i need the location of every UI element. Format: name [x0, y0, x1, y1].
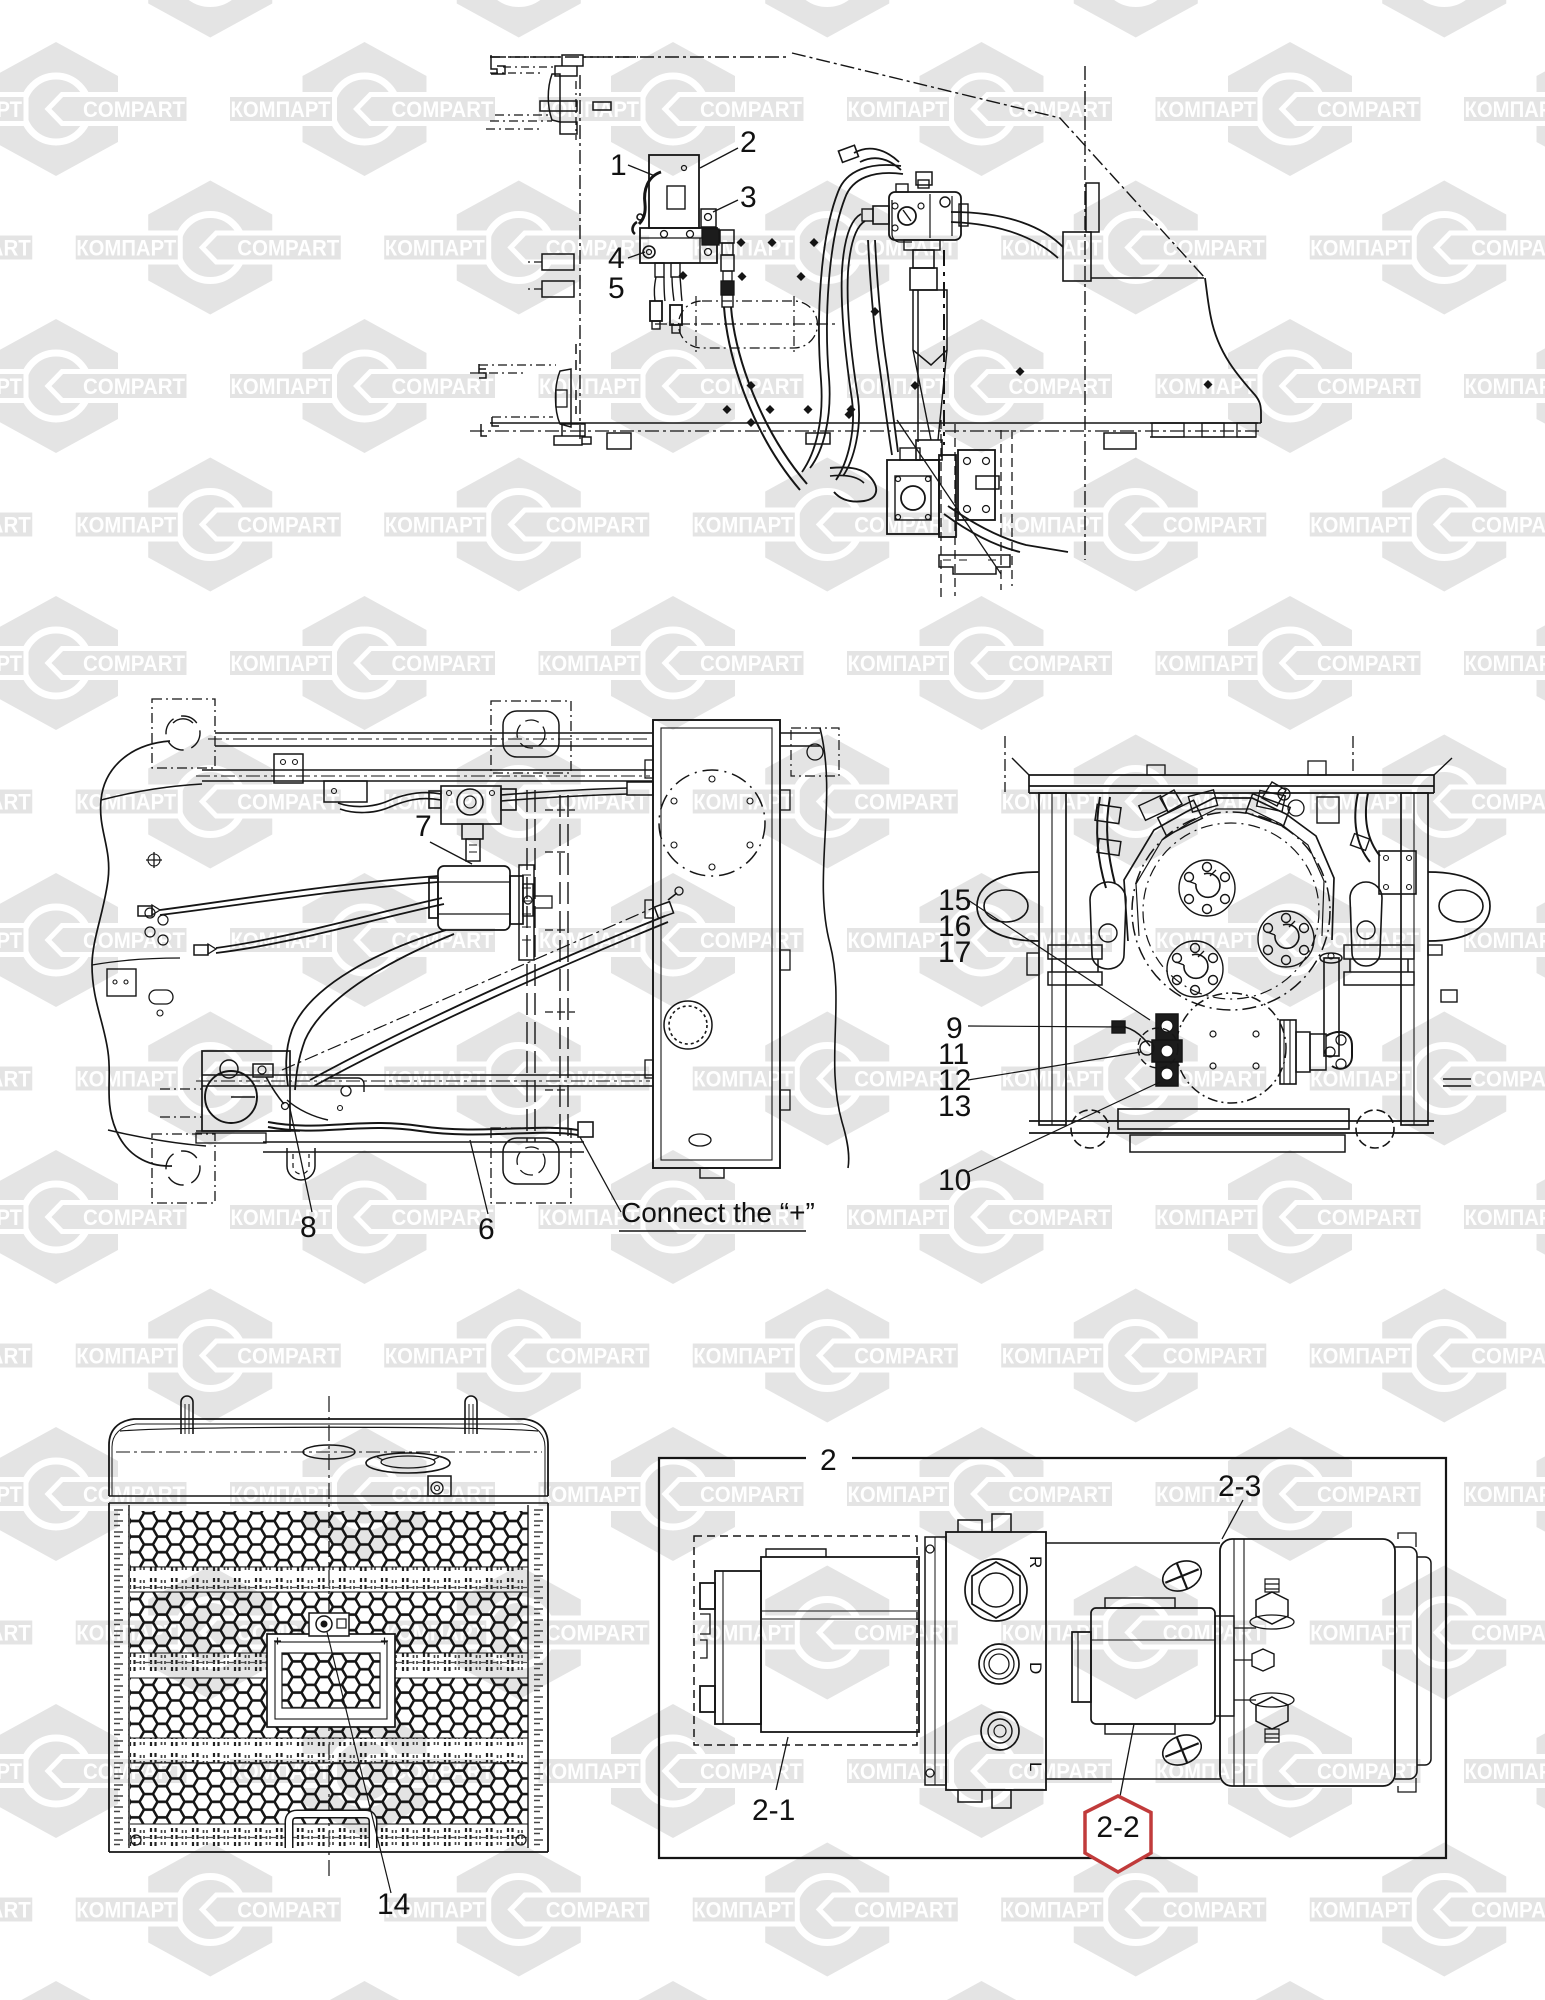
svg-text:Connect the “+”: Connect the “+” — [621, 1197, 815, 1228]
svg-text:1: 1 — [610, 149, 627, 182]
svg-text:8: 8 — [300, 1211, 317, 1244]
svg-text:6: 6 — [478, 1213, 495, 1246]
svg-text:R: R — [1026, 1556, 1045, 1568]
svg-text:13: 13 — [938, 1090, 971, 1123]
svg-text:2: 2 — [820, 1444, 837, 1477]
svg-text:3: 3 — [740, 181, 757, 214]
svg-text:2-2: 2-2 — [1096, 1811, 1139, 1844]
svg-text:5: 5 — [608, 272, 625, 305]
svg-text:4: 4 — [608, 242, 625, 275]
svg-text:10: 10 — [938, 1164, 971, 1197]
svg-text:17: 17 — [938, 936, 971, 969]
svg-text:2-1: 2-1 — [752, 1794, 795, 1827]
svg-text:2: 2 — [740, 126, 757, 159]
svg-text:D: D — [1026, 1662, 1045, 1674]
svg-text:14: 14 — [377, 1888, 410, 1921]
svg-text:2-3: 2-3 — [1218, 1470, 1261, 1503]
svg-text:7: 7 — [415, 810, 432, 843]
svg-text:L: L — [1026, 1762, 1045, 1771]
